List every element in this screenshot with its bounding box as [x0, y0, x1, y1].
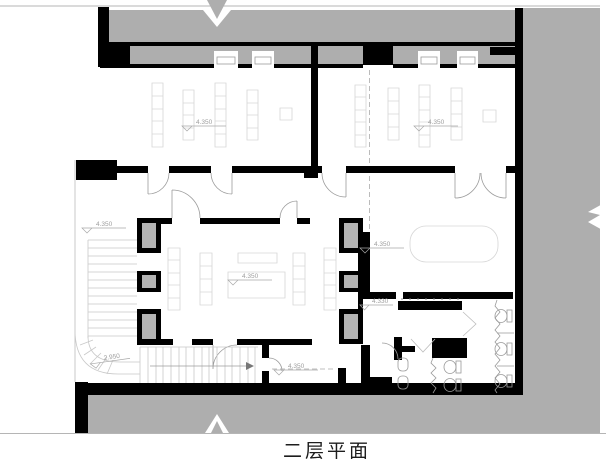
column-icon	[339, 271, 363, 292]
column-icon	[137, 271, 161, 292]
wall-left-block	[76, 160, 117, 180]
wall-top-outer	[109, 42, 521, 46]
level-value: 4.350	[196, 119, 213, 126]
meeting-table	[410, 226, 498, 262]
wall-corridor-seg	[318, 166, 322, 173]
wall-hall-south-seg	[237, 339, 312, 345]
wall-bottom-left-cap	[75, 382, 88, 433]
wall-corridor-seg	[232, 166, 311, 173]
wall-classroom-divider	[311, 46, 318, 173]
level-value: 2.950	[103, 353, 120, 362]
stair-treads	[140, 347, 258, 383]
pivot-door-icon	[463, 312, 476, 336]
wall-meeting-south-seg	[403, 292, 513, 299]
floor-plan-drawing: 4.350 4.350 4.350 4.350 4.350 4.330 2.95…	[0, 0, 606, 465]
wall-washroom-stub	[398, 346, 415, 352]
desk-rows	[355, 85, 496, 147]
level-value: 4.350	[96, 221, 113, 228]
floor-plan-canvas: 4.350 4.350 4.350 4.350 4.350 4.330 2.95…	[0, 0, 606, 465]
wall-top-inner-seg	[393, 64, 418, 68]
wall-top-right-stub	[490, 47, 515, 55]
duct-shaft-block	[432, 338, 467, 358]
wall-hall-east-seg	[358, 253, 363, 271]
column-icon	[137, 309, 161, 344]
level-value: 4.350	[374, 241, 391, 248]
level-value: 4.350	[288, 363, 305, 370]
toilet-icon	[444, 361, 461, 374]
door-icon	[280, 201, 297, 218]
stair-direction-arrow-icon	[246, 362, 254, 370]
wall-corridor-seg	[346, 166, 455, 173]
window-icon	[214, 51, 238, 65]
window-icon	[418, 51, 440, 65]
window-icon	[457, 51, 478, 65]
shade-band-bottom	[88, 395, 523, 433]
drawing-title: 二层平面	[283, 441, 371, 462]
window-icon	[252, 51, 274, 65]
door-icon	[211, 173, 232, 194]
level-marker: 4.350	[228, 273, 272, 285]
wall-top-pier	[363, 46, 393, 65]
door-icon	[172, 190, 200, 218]
wall-hall-east-seg	[358, 292, 363, 309]
wall-corridor-seg	[169, 166, 211, 173]
stair-curve	[75, 330, 140, 374]
wall-top-inner-seg	[274, 64, 363, 68]
column-icon	[137, 218, 161, 253]
level-marker: 4.350	[82, 221, 126, 233]
furniture-classroom-left	[152, 83, 292, 147]
level-value: 4.330	[372, 298, 389, 305]
shade-band-top	[109, 10, 515, 42]
wall-meeting-west	[363, 232, 370, 298]
door-icon	[455, 173, 480, 198]
wall-top-inner-seg	[440, 64, 457, 68]
wall-top-inner-seg	[478, 64, 521, 68]
wall-corridor-seg	[506, 166, 515, 173]
wall-top-inner-seg	[100, 64, 214, 68]
door-icon	[481, 173, 506, 198]
wall-top-inner-seg	[238, 64, 252, 68]
level-value: 4.350	[242, 273, 259, 280]
wall-vestibule-west-seg	[262, 345, 269, 358]
column-icon	[339, 309, 363, 344]
wall-hall-south-seg	[192, 339, 213, 345]
level-marker: 4.330	[360, 298, 393, 310]
wall-hall-north-seg	[297, 218, 310, 224]
furniture-classroom-right	[355, 85, 496, 147]
locker-bench	[398, 301, 462, 310]
shade-band-right	[523, 8, 600, 433]
stair-bottom	[140, 347, 258, 383]
wall-top-left-corner	[100, 46, 130, 67]
door-icon	[322, 173, 346, 197]
door-icon	[148, 173, 169, 194]
wall-hall-north-seg	[200, 218, 280, 224]
stair-treads	[88, 240, 137, 338]
hall-columns	[137, 218, 363, 344]
level-value: 4.350	[428, 119, 445, 126]
desk-rows	[152, 83, 292, 147]
